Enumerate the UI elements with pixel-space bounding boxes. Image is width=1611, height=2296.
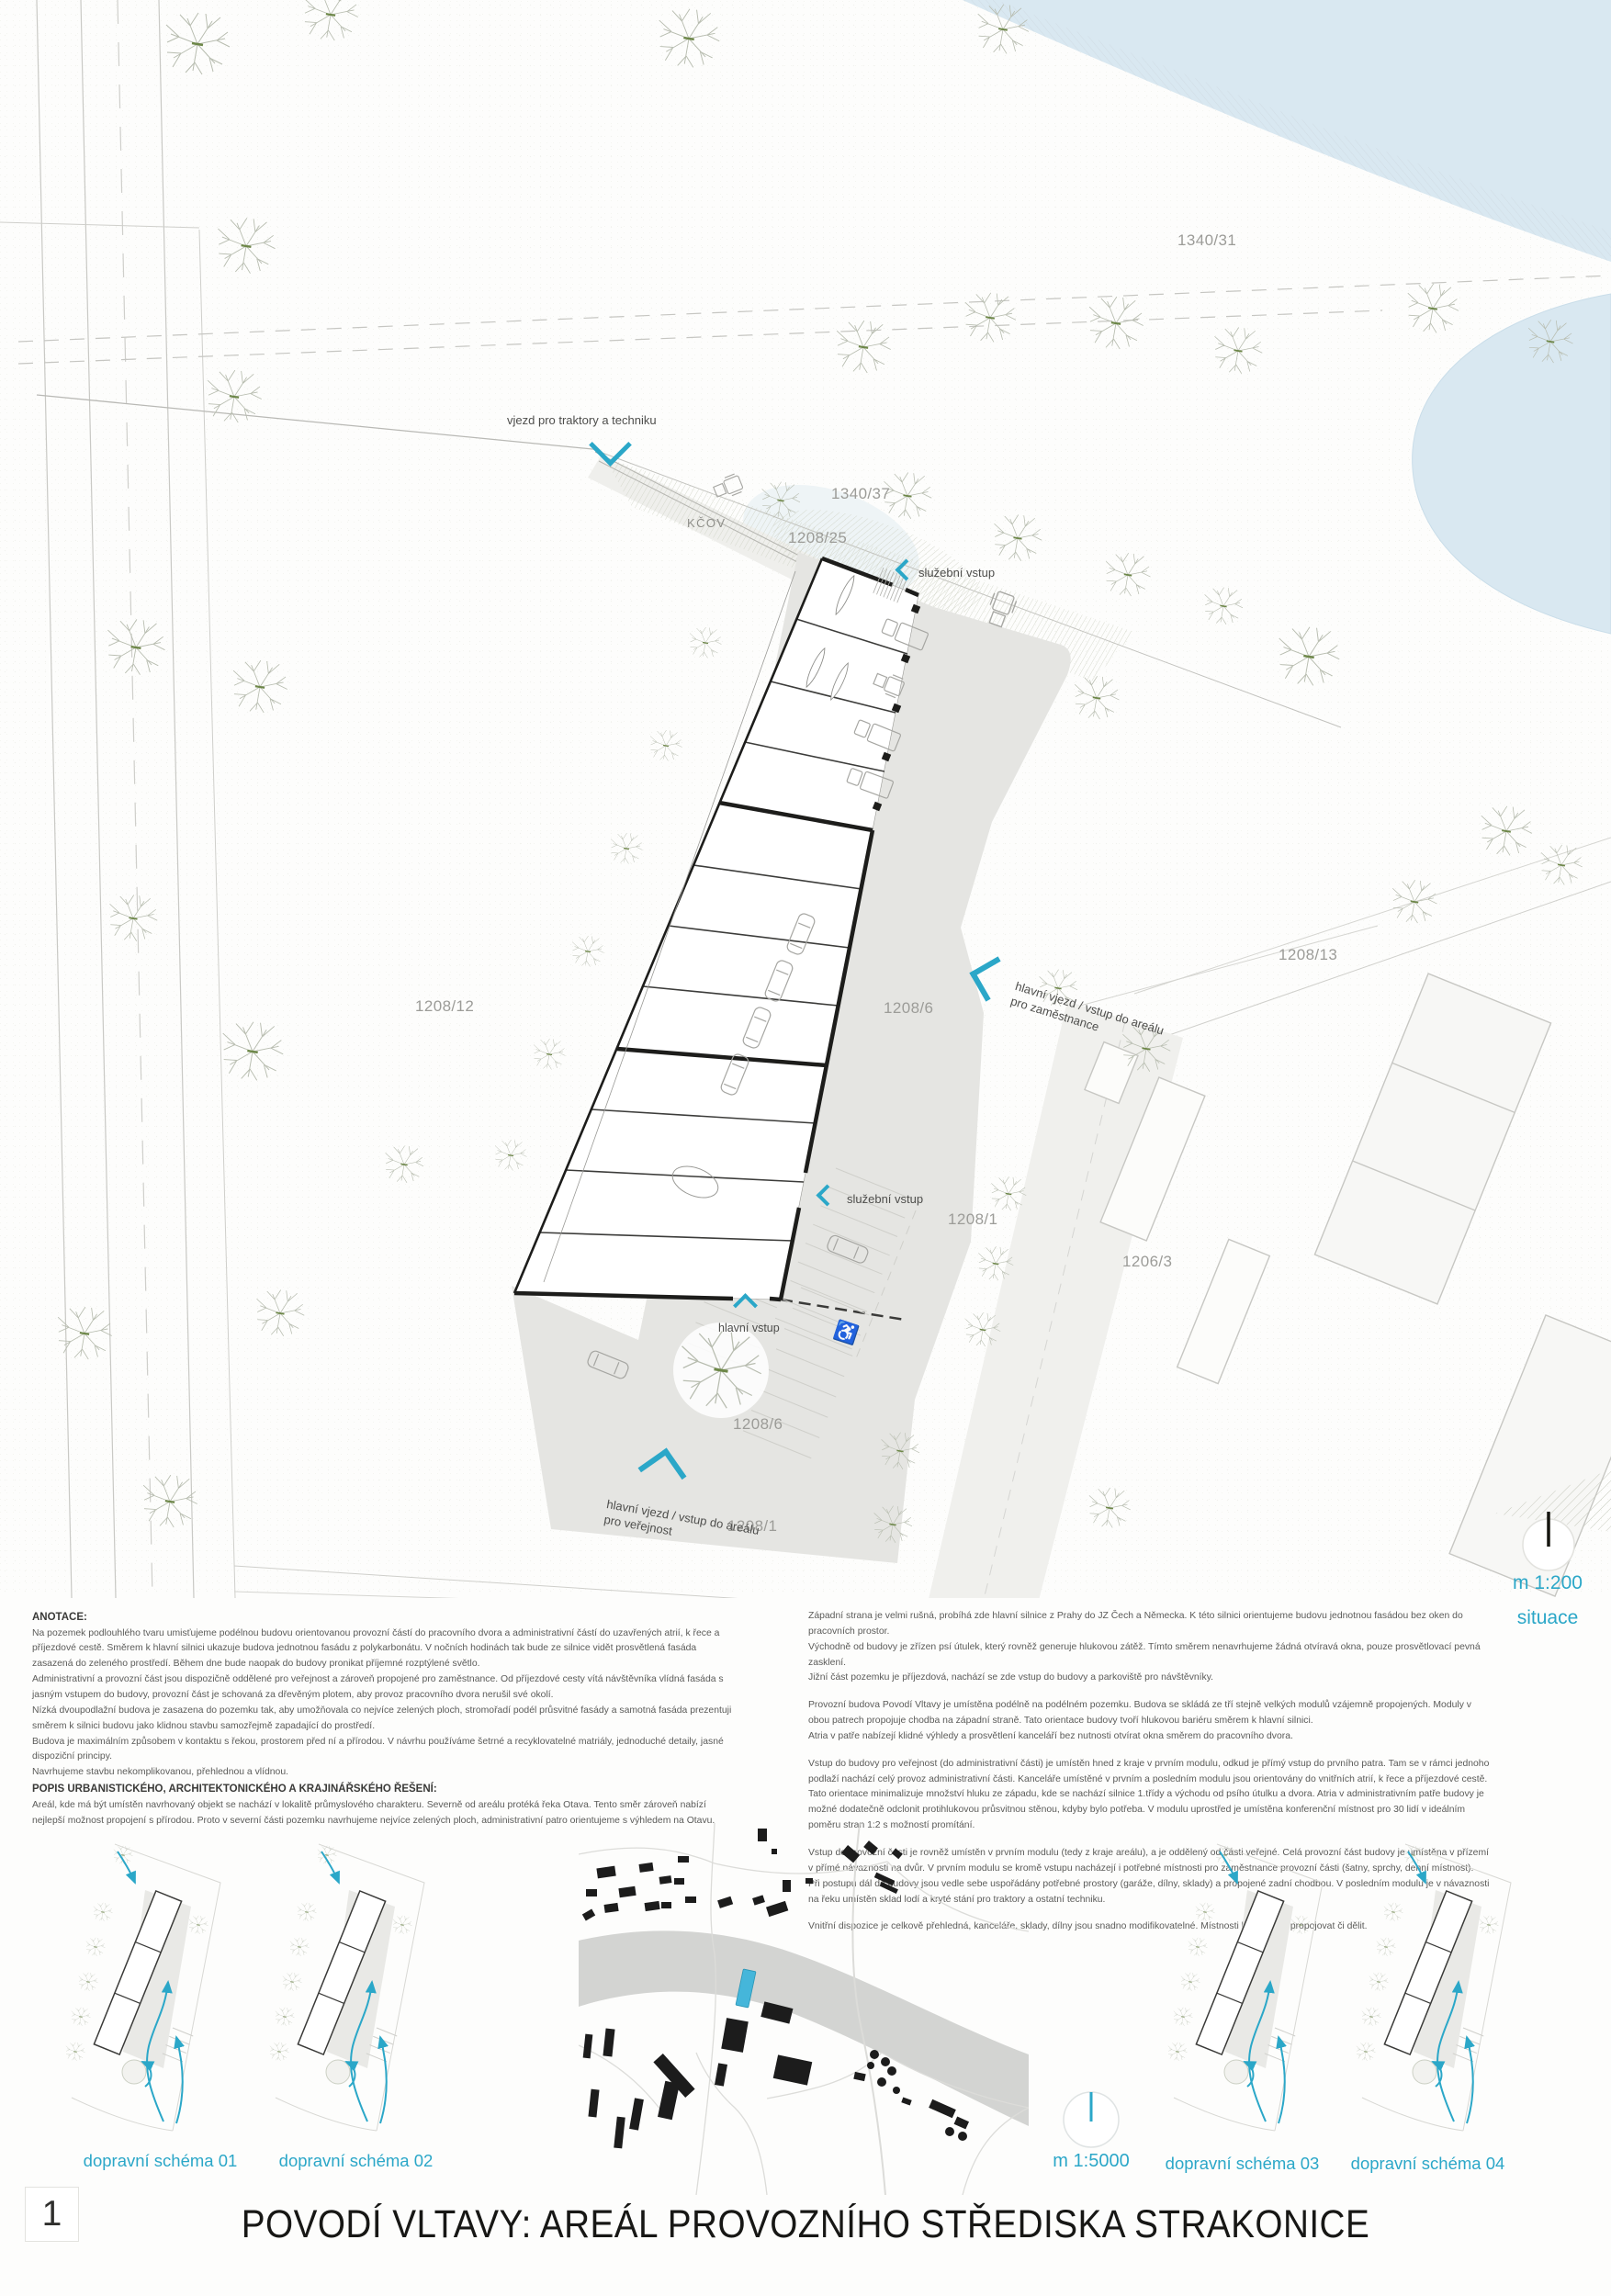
parcel-label: 1208/25 (788, 529, 847, 547)
traffic-scheme-02-drawing (241, 1837, 447, 2140)
river-band (579, 1930, 1029, 2126)
entrance-label-tractors: vjezd pro traktory a techniku (507, 413, 657, 429)
entrance-label-service-south: služební vstup (847, 1192, 923, 1208)
traffic-scheme-01-label: dopravní schéma 01 (57, 2151, 264, 2171)
presentation-board: 1340/31 1340/37 1208/25 1208/12 1208/6 1… (0, 0, 1611, 2296)
traffic-scheme-02-label: dopravní schéma 02 (253, 2151, 459, 2171)
parcel-label: 1208/6 (733, 1415, 783, 1434)
notes-heading: ANOTACE: (32, 1609, 732, 1626)
paragraph: Budova je maximálním způsobem v kontaktu… (32, 1735, 732, 1766)
parcel-label: 1208/1 (948, 1210, 997, 1229)
site-plan-scale: m 1:200 (1470, 1572, 1611, 1594)
kcov-label: KČOV (687, 516, 726, 530)
parcel-label: 1340/31 (1177, 231, 1236, 250)
sheet-number-value: 1 (42, 2194, 62, 2234)
board-title: POVODÍ VLTAVY: AREÁL PROVOZNÍHO STŘEDISK… (81, 2202, 1531, 2247)
parcel-label: 1208/12 (415, 997, 474, 1016)
traffic-scheme-04-label: dopravní schéma 04 (1324, 2154, 1531, 2174)
traffic-scheme-03-drawing (1139, 1837, 1346, 2140)
entrance-label-main: hlavní vstup (718, 1321, 780, 1335)
parcel-label: 1208/6 (884, 999, 933, 1018)
notes-subheading: POPIS URBANISTICKÉHO, ARCHITEKTONICKÉHO … (32, 1781, 732, 1798)
site-plan-drawing (0, 0, 1611, 1598)
traffic-scheme-04-drawing (1327, 1837, 1534, 2140)
entrance-label-service-north: služební vstup (918, 566, 995, 581)
sheet-number: 1 (25, 2187, 79, 2242)
paragraph: Východně od budovy je zřízen psí útulek,… (808, 1640, 1490, 1671)
site-plan-name: situace (1470, 1607, 1611, 1629)
paragraph: Provozní budova Povodí Vltavy je umístěn… (808, 1698, 1490, 1729)
parcel-label: 1208/13 (1279, 946, 1337, 964)
city-map-scale: m 1:5000 (1013, 2151, 1169, 2172)
city-map-drawing (579, 1823, 1029, 2195)
traffic-scheme-03-label: dopravní schéma 03 (1139, 2154, 1346, 2174)
paragraph: Západní strana je velmi rušná, probíhá z… (808, 1609, 1490, 1640)
parcel-label: 1206/3 (1122, 1253, 1172, 1271)
paragraph: Administrativní a provozní část jsou dis… (32, 1672, 732, 1704)
notes-left-column: ANOTACE: Na pozemek podlouhlého tvaru um… (32, 1609, 732, 1829)
paragraph: Navrhujeme stavbu nekomplikovanou, přehl… (32, 1765, 732, 1781)
parcel-label: 1340/37 (831, 485, 890, 503)
paragraph: Nízká dvoupodlažní budova je zasazena do… (32, 1704, 732, 1735)
paragraph: Jižní část pozemku je příjezdová, nacház… (808, 1671, 1490, 1686)
paragraph: Na pozemek podlouhlého tvaru umisťujeme … (32, 1626, 732, 1673)
traffic-scheme-01-drawing (37, 1837, 243, 2140)
map-north-arrow-icon (1056, 2085, 1126, 2155)
paragraph: Atria v patře nabízejí klidné výhledy a … (808, 1729, 1490, 1745)
